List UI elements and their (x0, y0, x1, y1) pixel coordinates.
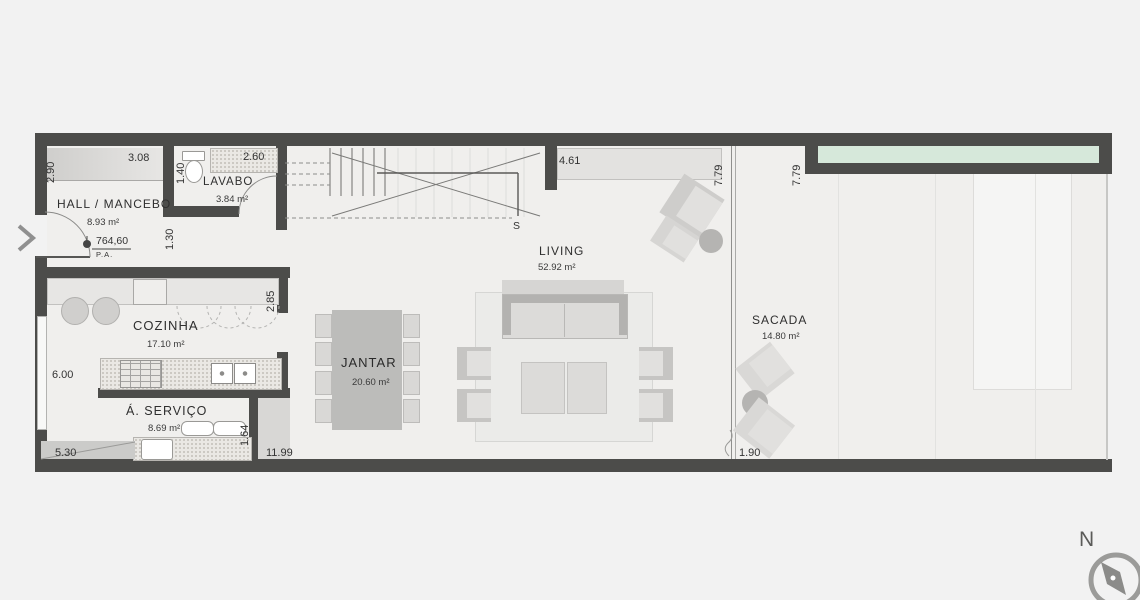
dim-lavabo-left: 1.40 (175, 163, 187, 184)
dim-living-top: 4.61 (559, 155, 580, 167)
side-table-icon (699, 229, 723, 253)
room-area-servico: 8.69 m² (148, 423, 180, 434)
glass-partition (735, 146, 736, 459)
kitchen-appliance (133, 279, 167, 305)
wall-lavabo-bottom (163, 206, 239, 217)
room-area-jantar: 20.60 m² (352, 377, 390, 388)
sofa-icon (502, 294, 628, 339)
compass-icon (1091, 555, 1140, 600)
washer-icon (141, 439, 173, 460)
dim-bottom-center: 11.99 (266, 447, 293, 459)
dining-chair (315, 399, 332, 423)
armchair-icon (639, 389, 673, 422)
double-sink-icon (211, 363, 257, 384)
dining-chair (403, 399, 420, 423)
room-label-lavabo: LAVABO (203, 176, 253, 188)
window-icon (37, 316, 47, 430)
dim-servico-right: 1.64 (239, 425, 251, 446)
stairs-direction-label: S (513, 220, 520, 232)
floor-joint (935, 174, 936, 459)
dim-cozinha-left: 6.00 (52, 369, 73, 381)
room-label-sacada: SACADA (752, 313, 807, 327)
room-label-cozinha: COZINHA (133, 318, 199, 333)
room-area-lavabo: 3.84 m² (216, 194, 248, 205)
level-marker-value: 764,60 (96, 235, 128, 247)
dining-chair (403, 314, 420, 338)
dining-chair (315, 371, 332, 395)
dining-chair (403, 371, 420, 395)
room-label-servico: Á. SERVIÇO (126, 404, 207, 418)
floor-joint (1035, 174, 1036, 459)
armchair-icon (457, 347, 491, 380)
ottoman (521, 362, 565, 414)
north-label: N (1079, 528, 1094, 552)
dim-hall-left: 2.90 (45, 162, 57, 183)
level-marker-reference: P.A. (96, 250, 113, 259)
room-label-jantar: JANTAR (341, 355, 397, 370)
dining-chair (315, 342, 332, 366)
dim-cozinha-right: 2.85 (265, 291, 277, 312)
room-area-hall: 8.93 m² (87, 217, 119, 228)
uncovered-area (973, 172, 1072, 390)
dim-living-glass: 7.79 (713, 165, 725, 186)
ottoman (567, 362, 607, 414)
armchair-icon (457, 389, 491, 422)
dim-sacada-left: 7.79 (791, 165, 803, 186)
floor-joint (838, 174, 839, 459)
dim-bottom-left: 5.30 (55, 447, 76, 459)
dining-chair (403, 342, 420, 366)
room-label-living: LIVING (539, 244, 584, 258)
glass-partition (731, 146, 732, 459)
laundry-basket (181, 421, 214, 436)
dim-lavabo-top: 2.60 (243, 151, 264, 163)
right-edge-line (1106, 174, 1108, 460)
sideboard (557, 148, 722, 180)
wall-hall-cozinha (35, 267, 290, 278)
dining-chair (315, 314, 332, 338)
floor-plan: HALL / MANCEBO 8.93 m² LAVABO 3.84 m² CO… (0, 0, 1140, 600)
room-label-hall: HALL / MANCEBO (57, 197, 171, 211)
stove-icon (120, 360, 162, 388)
room-area-cozinha: 17.10 m² (147, 339, 185, 350)
armchair-icon (639, 347, 673, 380)
wall-stair-stub (545, 146, 557, 190)
stool-icon (61, 297, 89, 325)
room-area-living: 52.92 m² (538, 262, 576, 273)
entrance-arrow-icon (19, 226, 33, 250)
console-table (502, 280, 624, 294)
dim-hall-lower-left: 1.30 (164, 229, 176, 250)
dining-table (332, 310, 402, 430)
dim-sacada-bottom: 1.90 (739, 447, 760, 459)
dim-hall-top: 3.08 (128, 152, 149, 164)
room-area-sacada: 14.80 m² (762, 331, 800, 342)
stool-icon (92, 297, 120, 325)
planter-icon (818, 146, 1099, 163)
toilet-icon (185, 160, 203, 183)
